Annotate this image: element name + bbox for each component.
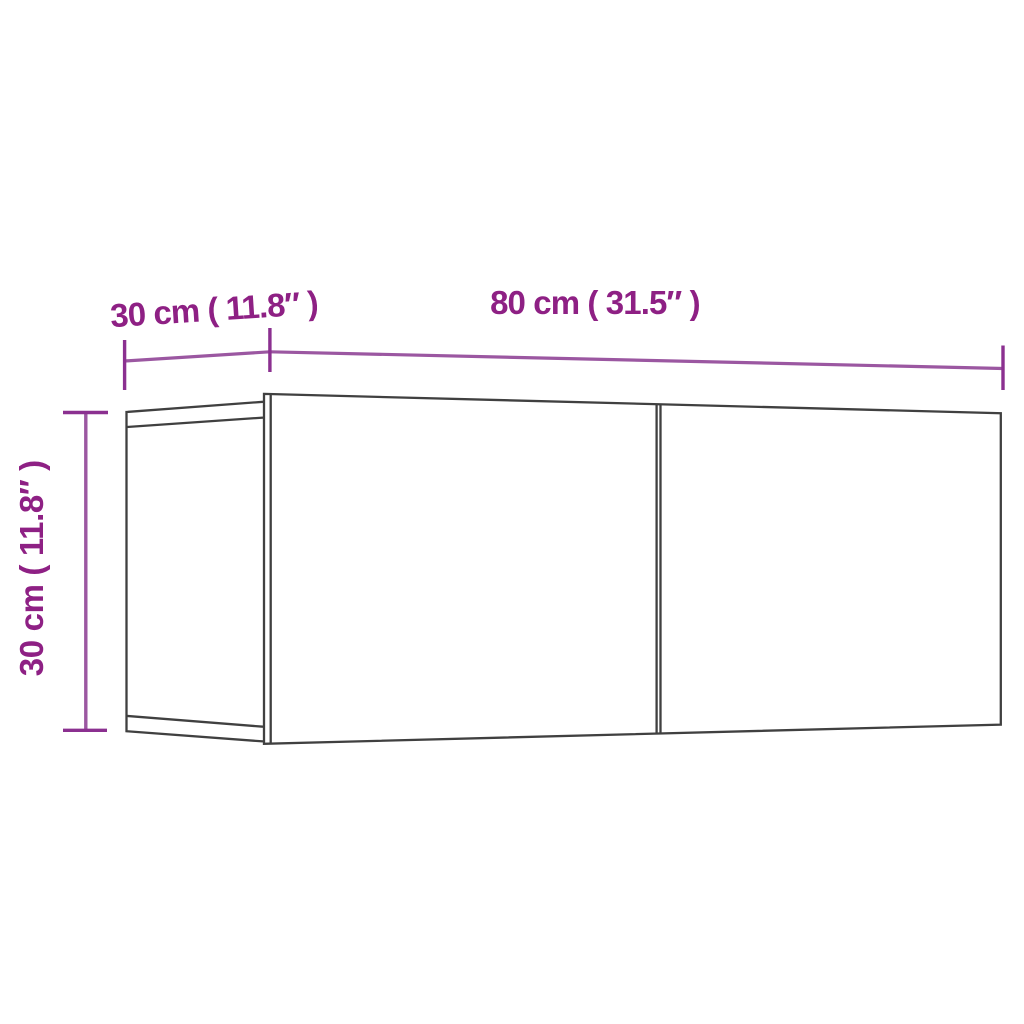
svg-text:30 cm ( 11.8″ ): 30 cm ( 11.8″ ) [13, 460, 50, 676]
svg-text:80 cm ( 31.5″ ): 80 cm ( 31.5″ ) [490, 284, 700, 321]
